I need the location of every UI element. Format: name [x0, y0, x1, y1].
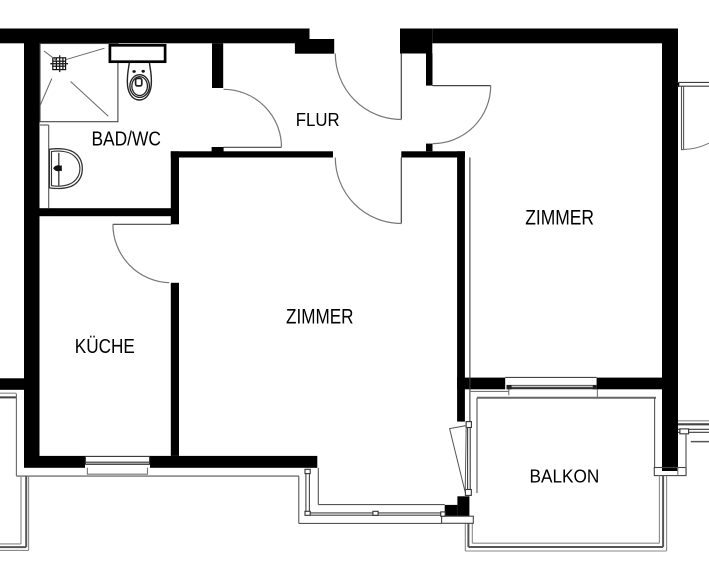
- svg-text:BALKON: BALKON: [530, 467, 600, 487]
- svg-text:ZIMMER: ZIMMER: [525, 207, 594, 230]
- svg-text:FLUR: FLUR: [296, 109, 340, 130]
- svg-text:KÜCHE: KÜCHE: [75, 336, 135, 358]
- svg-text:BAD/WC: BAD/WC: [91, 129, 161, 151]
- svg-text:ZIMMER: ZIMMER: [286, 305, 354, 328]
